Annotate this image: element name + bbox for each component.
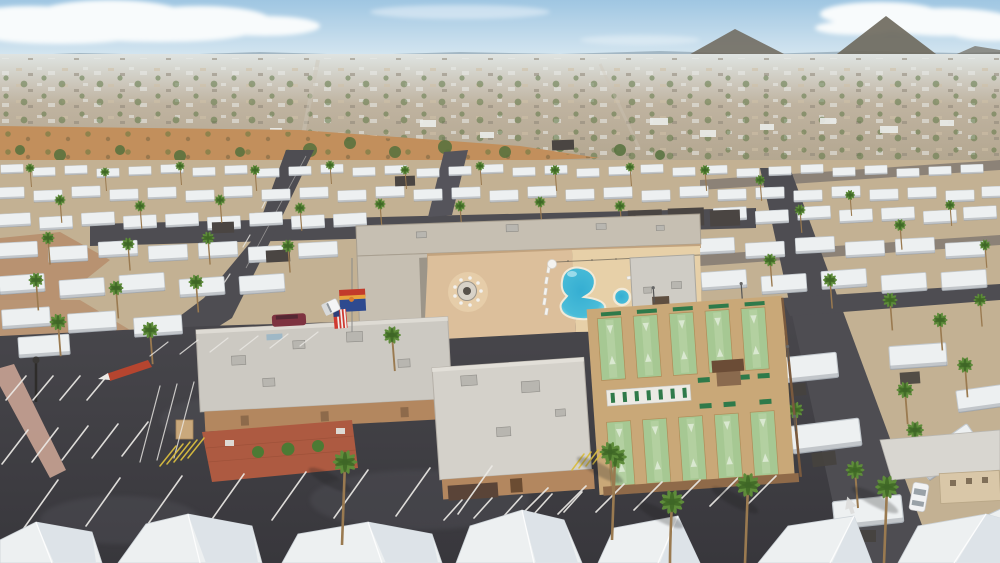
arizona-flag [339,289,366,312]
maroon-minivan [272,313,307,327]
pool-umbrella [548,260,557,269]
west-clubhouse [196,317,453,432]
tan-house [939,470,1000,503]
center-hall-building [432,357,595,499]
spa-hot-tub [614,289,630,305]
scene-canvas [0,0,1000,563]
aerial-photo-mobile-home-resort [0,0,1000,563]
utility-box [176,420,193,439]
